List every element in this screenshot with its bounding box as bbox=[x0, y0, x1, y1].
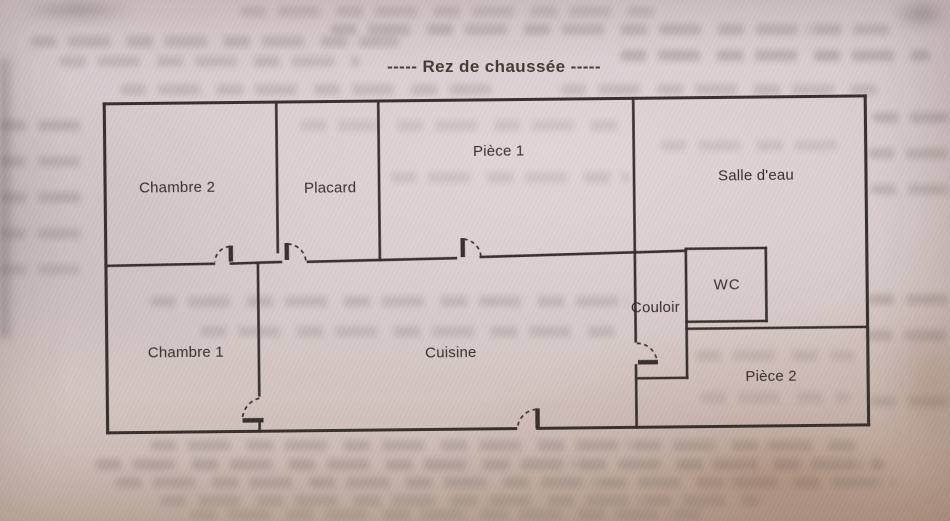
wall-placard-piece1 bbox=[378, 101, 380, 260]
wall-wc-top bbox=[686, 248, 766, 249]
room-label-chambre1: Chambre 1 bbox=[148, 344, 224, 362]
floor-plan-doors bbox=[215, 236, 659, 432]
room-label-chambre2: Chambre 2 bbox=[139, 179, 215, 197]
wall-outer-bottom-right bbox=[538, 425, 869, 428]
wall-couloir-top bbox=[635, 251, 686, 253]
room-label-salle-deau: Salle d'eau bbox=[718, 167, 794, 185]
wall-cuisine-piece2 bbox=[636, 365, 637, 427]
room-label-piece1: Pièce 1 bbox=[473, 142, 525, 160]
wall-outer-top bbox=[104, 96, 865, 104]
room-label-piece2: Pièce 2 bbox=[745, 368, 797, 386]
wall-outer-bottom-left bbox=[108, 429, 516, 433]
wall-couloir-right bbox=[686, 251, 687, 378]
door-swing-placard bbox=[288, 244, 306, 261]
door-swing-couloir bbox=[637, 343, 657, 361]
door-swing-chambre1 bbox=[242, 398, 259, 418]
room-labels: Chambre 2 Placard Pièce 1 Salle d'eau WC… bbox=[139, 140, 797, 392]
photographed-floor-plan-page: ----- Rez de chaussée ----- bbox=[0, 0, 950, 521]
wall-wc-bottom bbox=[687, 321, 767, 322]
wall-outer-left bbox=[104, 104, 107, 433]
wall-piece1-cuisine bbox=[481, 252, 635, 257]
room-label-wc: WC bbox=[714, 276, 741, 293]
wall-chambre1-cuisine bbox=[258, 263, 259, 395]
door-swing-piece1 bbox=[464, 239, 481, 256]
room-label-placard: Placard bbox=[304, 179, 356, 197]
door-swing-chambre2 bbox=[215, 247, 230, 262]
wall-divider-mid-b bbox=[308, 258, 456, 262]
wall-chambre2-chambre1 bbox=[106, 264, 214, 266]
door-swing-cuisine-exterior bbox=[517, 409, 536, 427]
wall-outer-right bbox=[865, 96, 868, 425]
wall-divider-mid-a bbox=[231, 262, 281, 264]
wall-piece2-step bbox=[638, 378, 687, 379]
room-label-couloir: Couloir bbox=[631, 299, 680, 317]
floor-plan-drawing: Chambre 2 Placard Pièce 1 Salle d'eau WC… bbox=[0, 0, 950, 521]
wall-piece2-top bbox=[687, 327, 868, 329]
wall-wc-right bbox=[766, 248, 767, 321]
room-label-cuisine: Cuisine bbox=[425, 344, 477, 362]
wall-chambre2-placard bbox=[276, 102, 278, 252]
